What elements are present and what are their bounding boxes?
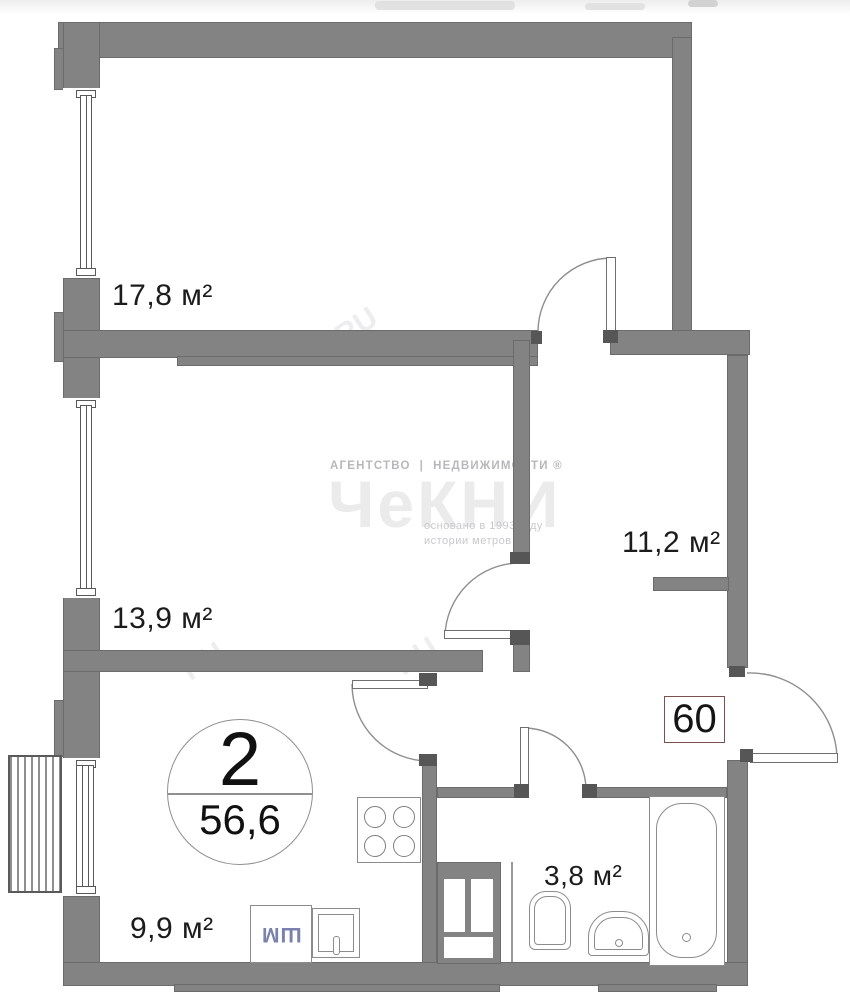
stove-burner	[364, 835, 386, 857]
door-swing-arc	[445, 563, 519, 636]
watermark-tagline: истории метров	[424, 535, 512, 547]
wall-segment	[58, 22, 692, 58]
door-jamb	[582, 784, 597, 798]
window-glazing-line	[86, 96, 87, 270]
wall-pilaster	[54, 700, 64, 757]
window-glazing-line	[88, 766, 89, 888]
bathtub	[649, 796, 725, 966]
exterior-hatched-unit	[8, 755, 62, 893]
sink	[588, 911, 649, 956]
door-swing-arc	[525, 728, 586, 789]
door-jamb	[531, 331, 542, 344]
room-area-label-room1: 17,8 м²	[112, 279, 213, 313]
stove-burner	[393, 806, 415, 828]
room-area-label-hall: 11,2 м²	[622, 526, 721, 560]
bathtub-drain	[682, 933, 691, 942]
apartment-number-badge: 60	[664, 696, 725, 743]
wall-segment	[63, 962, 748, 986]
window	[63, 398, 100, 598]
photo-smudge	[585, 3, 645, 10]
window-glazing-line	[82, 766, 83, 888]
window	[63, 88, 100, 278]
door-hinge	[419, 673, 437, 686]
window-frame	[80, 95, 92, 271]
shaft-opening	[444, 879, 465, 932]
wall-segment	[177, 356, 538, 366]
door-leaf	[444, 630, 518, 639]
door-swing-arc	[538, 258, 612, 332]
door-swing-arc	[352, 684, 429, 761]
stove-burner	[393, 835, 415, 857]
photo-smudge	[375, 1, 515, 10]
door-hinge	[510, 630, 530, 645]
total-area: 56,6	[168, 796, 312, 844]
door-jamb	[510, 552, 530, 564]
stove	[357, 797, 421, 863]
rooms-count: 2	[219, 727, 261, 794]
washing-machine-label: ШМ	[261, 922, 302, 946]
apartment-summary-badge: 2 56,6	[167, 719, 313, 865]
ventilation-shaft	[437, 862, 501, 964]
entrance-door-swing-arc	[747, 673, 837, 757]
wall-segment	[437, 787, 523, 798]
badge-top: 2	[168, 720, 312, 794]
wall-segment	[672, 37, 692, 333]
window-sill-cap	[76, 268, 96, 276]
entrance-door-leaf	[750, 753, 838, 763]
wall-segment	[727, 760, 748, 986]
wall-segment	[422, 757, 437, 963]
wall-segment	[653, 577, 729, 591]
room-area-label-bathroom: 3,8 м²	[544, 860, 622, 892]
window-sill-cap	[76, 886, 96, 894]
wall-segment	[598, 984, 717, 992]
door-leaf	[606, 257, 616, 334]
wall-segment	[513, 340, 530, 563]
window-frame	[80, 405, 92, 591]
window-sill-cap	[76, 588, 96, 596]
door-hinge	[603, 330, 618, 343]
shaft-opening	[471, 879, 493, 932]
wall-segment	[63, 596, 100, 760]
kitchen-sink	[312, 908, 360, 958]
partition-line	[511, 862, 513, 962]
room-area-label-kitchen: 9,9 м²	[130, 912, 214, 946]
wall-segment	[174, 984, 500, 992]
door-jamb	[419, 754, 437, 766]
floor-plan: RU RU RU АГЕНТСТВО | НЕДВИЖИМОСТИ ® ЧеКН…	[0, 0, 850, 1000]
shaft-opening	[444, 937, 493, 958]
washing-machine: ШМ	[250, 905, 312, 963]
door-leaf	[520, 727, 529, 791]
wall-segment	[610, 330, 750, 355]
room-area-label-room2: 13,9 м²	[112, 602, 213, 636]
wall-segment	[727, 355, 748, 668]
window	[63, 758, 100, 896]
door-hinge	[514, 784, 529, 798]
toilet	[529, 891, 571, 950]
wall-segment	[63, 22, 100, 90]
window-frame	[76, 765, 94, 889]
entrance-door-hinge	[740, 749, 753, 762]
window-glazing-line	[86, 406, 87, 590]
badge-divider	[168, 793, 312, 795]
sink-drain	[615, 939, 623, 947]
stove-burner	[364, 806, 386, 828]
apartment-number: 60	[672, 697, 717, 742]
toilet-bowl	[534, 896, 566, 945]
kitchen-sink-tap	[333, 936, 340, 955]
wall-pilaster	[54, 48, 64, 90]
door-leaf	[352, 680, 428, 689]
photo-smudge	[688, 0, 718, 7]
wall-segment	[63, 330, 538, 358]
door-jamb	[729, 666, 745, 677]
wall-segment	[63, 650, 483, 672]
